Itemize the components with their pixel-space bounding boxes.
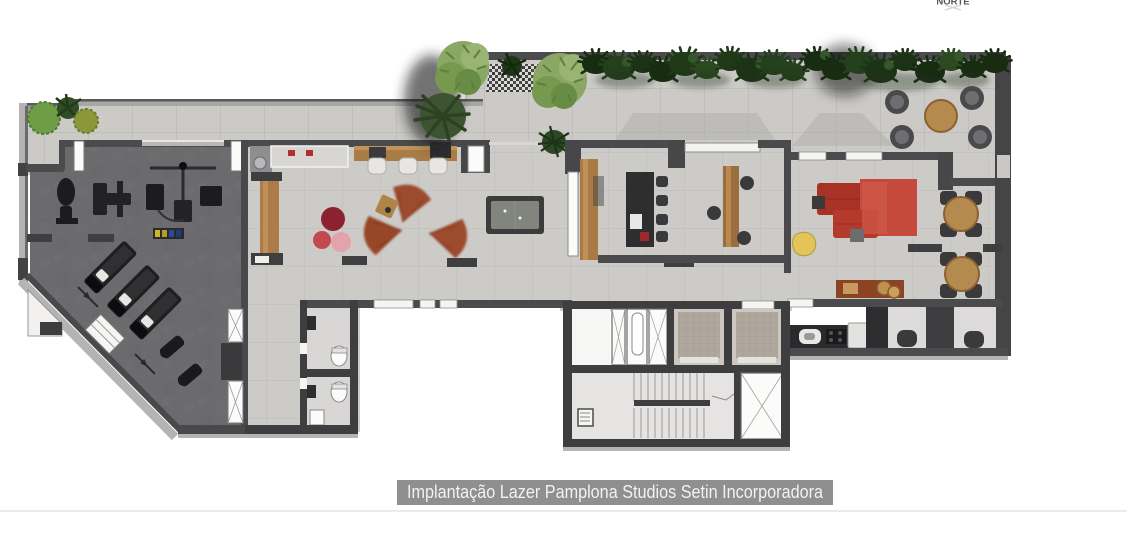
svg-text:Implantação Lazer Pamplona Stu: Implantação Lazer Pamplona Studios Setin… <box>407 482 824 502</box>
svg-text:NORTE: NORTE <box>936 0 969 8</box>
